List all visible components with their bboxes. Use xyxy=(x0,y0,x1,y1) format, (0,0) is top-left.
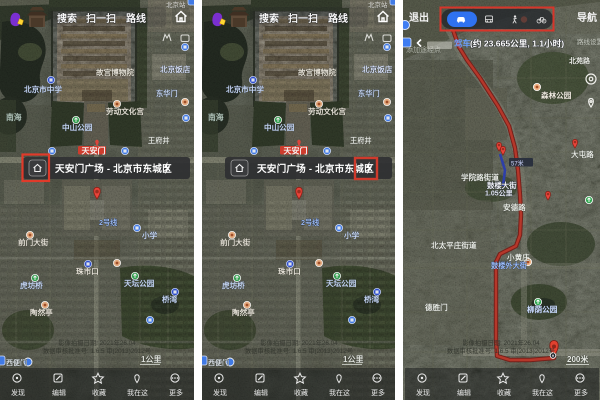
svg-text:北苑路: 北苑路 xyxy=(569,56,591,65)
svg-text:安德路: 安德路 xyxy=(503,202,526,212)
svg-text:学院路街道: 学院路街道 xyxy=(461,172,499,182)
svg-text:驾车: 驾车 xyxy=(454,39,471,49)
svg-text:北太平庄街道: 北太平庄街道 xyxy=(431,240,477,250)
svg-text:数据审核批准号: 1.6.5 审(2013)2012号: 数据审核批准号: 1.6.5 审(2013)2012号 xyxy=(447,346,555,355)
svg-text:1.05公里: 1.05公里 xyxy=(485,189,513,198)
svg-text:森林公园: 森林公园 xyxy=(541,90,572,100)
svg-text:鼓楼外大街: 鼓楼外大街 xyxy=(491,261,528,270)
svg-text:德胜门: 德胜门 xyxy=(424,302,448,312)
svg-text:导航: 导航 xyxy=(577,11,597,24)
svg-text:影像拍摄日期: 2021年26.04: 影像拍摄日期: 2021年26.04 xyxy=(462,338,540,347)
svg-text:退出: 退出 xyxy=(409,11,429,24)
svg-text:柳荫公园: 柳荫公园 xyxy=(527,304,558,314)
svg-text:路线设置: 路线设置 xyxy=(577,37,600,46)
svg-text:200米: 200米 xyxy=(567,354,589,364)
svg-text:57米: 57米 xyxy=(511,160,524,168)
svg-text:(约 23.665公里, 1.1小时): (约 23.665公里, 1.1小时) xyxy=(470,38,564,49)
svg-text:鼓楼大街: 鼓楼大街 xyxy=(487,181,517,190)
svg-text:大屯路: 大屯路 xyxy=(571,149,594,159)
